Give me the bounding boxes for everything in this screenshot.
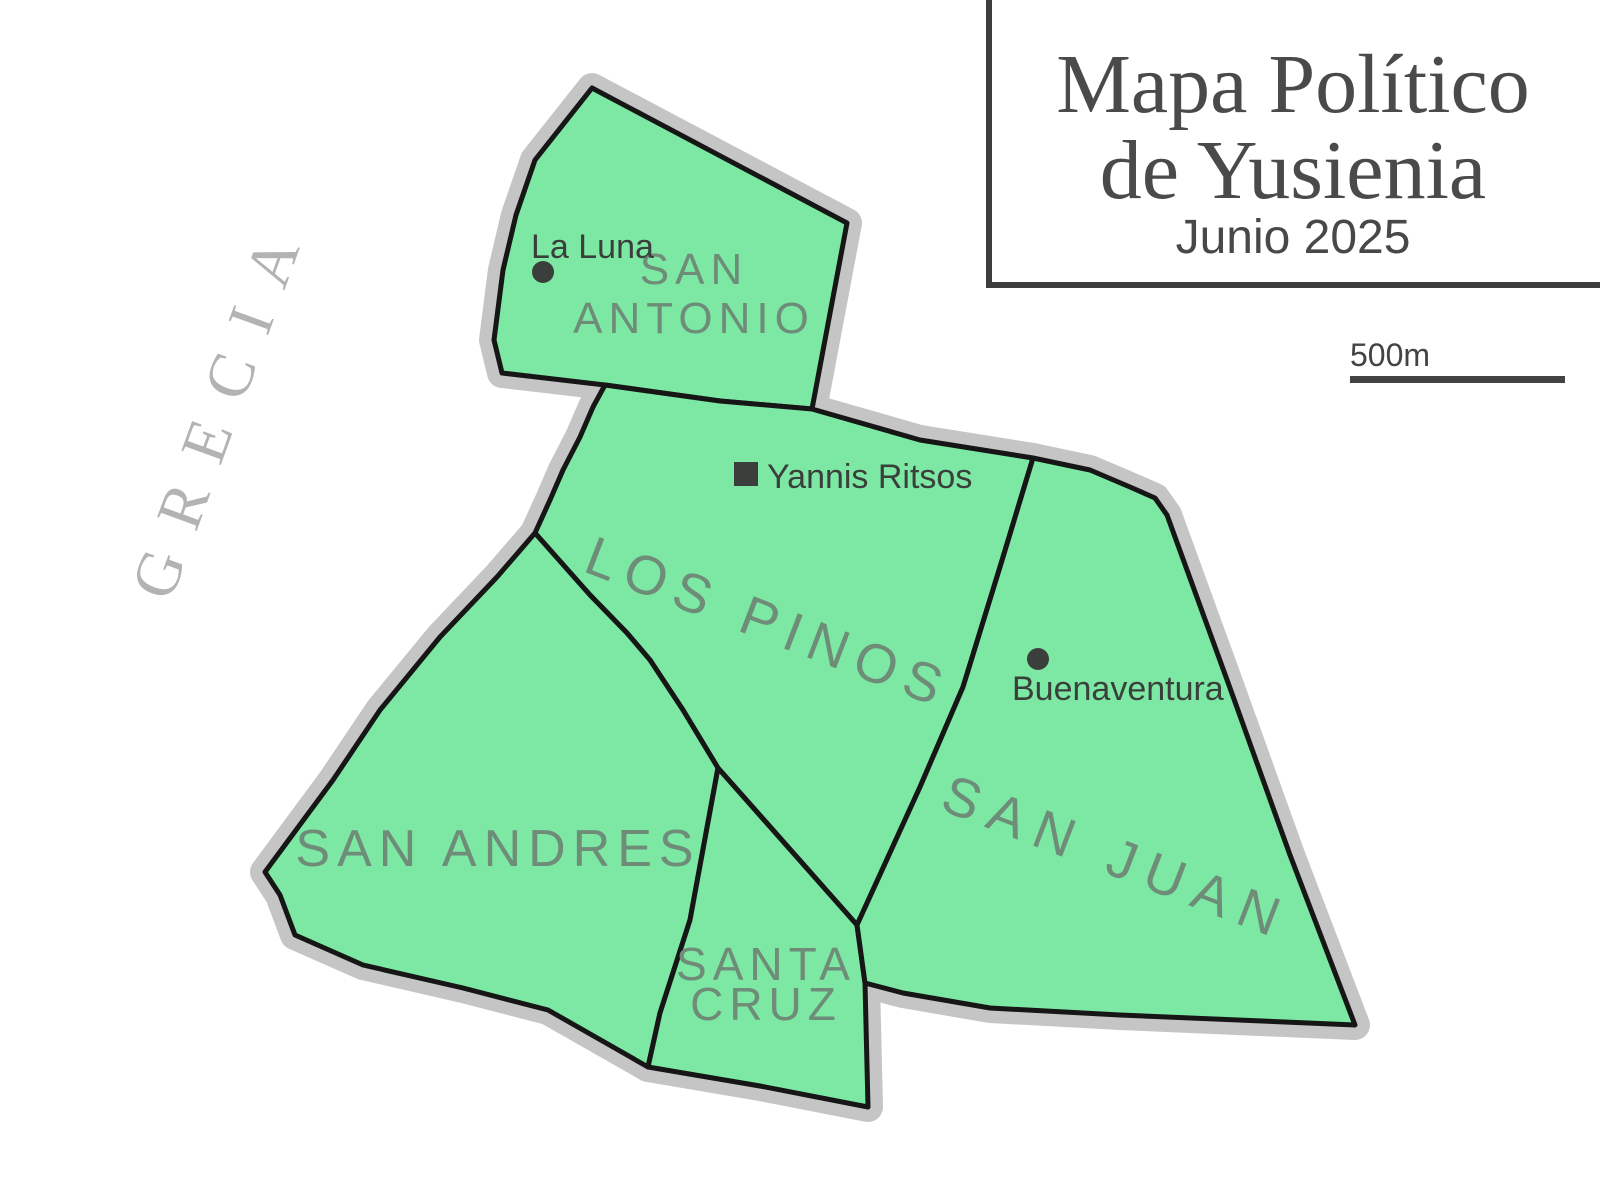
- region-label-san-andres: SAN ANDRES: [295, 820, 700, 878]
- scale-label: 500m: [1350, 337, 1430, 373]
- city-label-buenaventura: Buenaventura: [1012, 670, 1224, 708]
- scale-bar-line: [1350, 376, 1565, 383]
- region-label-san-antonio: SAN: [640, 245, 748, 294]
- map-title-line1: Mapa Político: [1056, 38, 1530, 131]
- region-label-san-antonio: ANTONIO: [573, 294, 815, 343]
- map-title-line2: de Yusienia: [1100, 124, 1486, 217]
- map-subtitle: Junio 2025: [1176, 211, 1411, 264]
- background-country-label: GRECIA: [117, 202, 323, 608]
- title-box: Mapa Político de Yusienia Junio 2025: [989, 0, 1600, 285]
- region-label-group-santa-cruz: SANTACRUZ: [676, 938, 856, 1030]
- scale-bar: 500m: [1350, 337, 1565, 383]
- region-label-group-san-andres: SAN ANDRES: [295, 820, 700, 878]
- city-marker-square-yannis-ritsos: [734, 462, 758, 486]
- region-label-santa-cruz: CRUZ: [690, 978, 842, 1030]
- map-canvas: GRECIA SANANTONIOLOS PINOSSAN ANDRESSANT…: [0, 0, 1600, 1200]
- city-label-la-luna: La Luna: [531, 228, 654, 266]
- city-marker-dot-buenaventura: [1027, 648, 1049, 670]
- city-label-yannis-ritsos: Yannis Ritsos: [767, 458, 972, 496]
